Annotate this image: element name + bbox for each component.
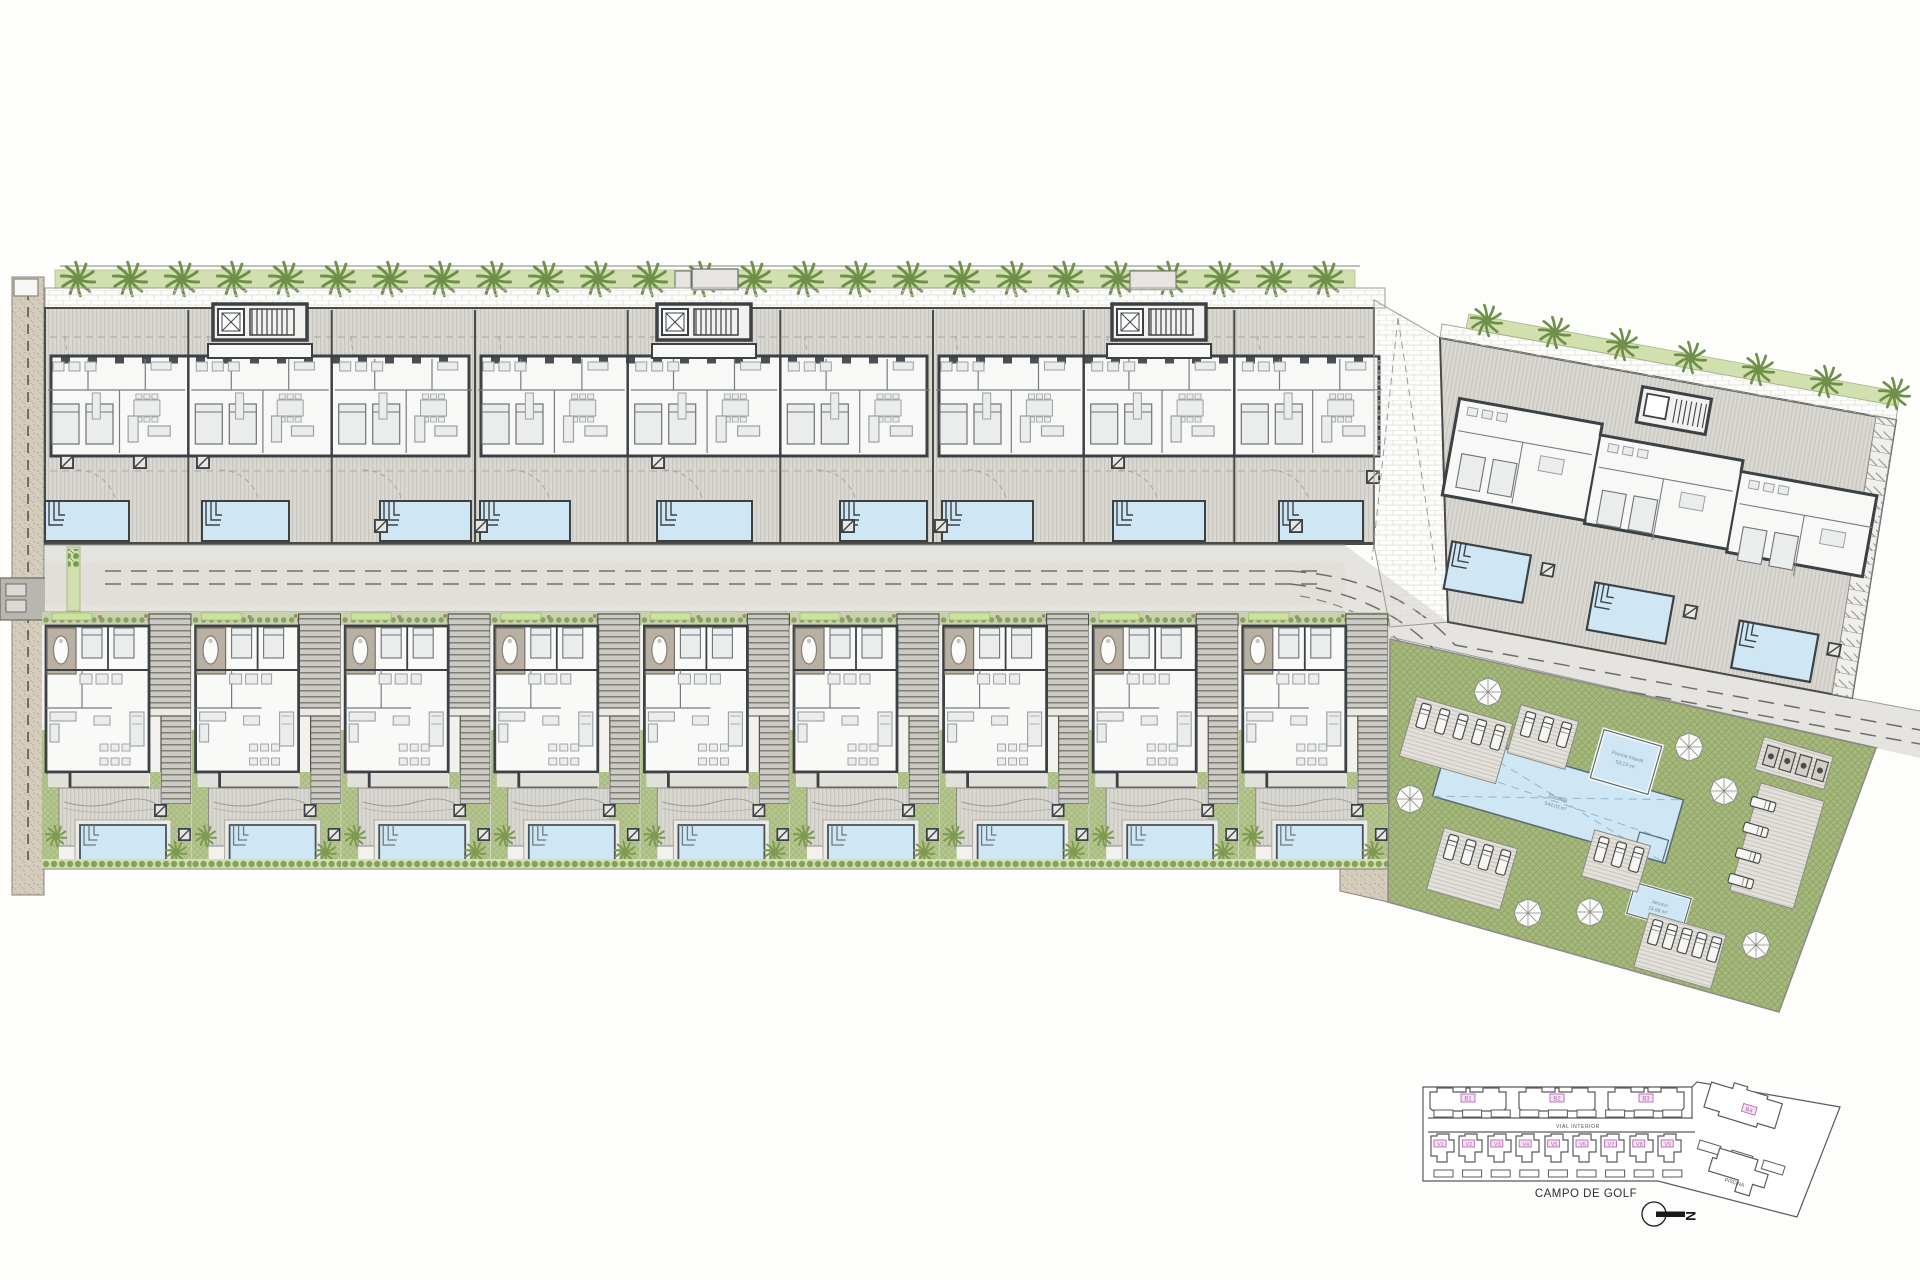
svg-text:V9: V9 [1664, 1142, 1671, 1148]
svg-text:VIAL INTERIOR: VIAL INTERIOR [1556, 1124, 1600, 1130]
svg-text:V3: V3 [1494, 1142, 1501, 1148]
svg-text:V4: V4 [1522, 1142, 1529, 1148]
svg-text:B2: B2 [1553, 1097, 1561, 1103]
svg-text:CAMPO DE GOLF: CAMPO DE GOLF [1535, 1188, 1637, 1200]
svg-text:B3: B3 [1642, 1097, 1650, 1103]
svg-text:N: N [1683, 1211, 1698, 1221]
svg-text:V5: V5 [1551, 1142, 1558, 1148]
svg-text:V6: V6 [1579, 1142, 1586, 1148]
svg-text:V8: V8 [1636, 1142, 1643, 1148]
svg-text:V1: V1 [1437, 1142, 1444, 1148]
svg-text:V7: V7 [1608, 1142, 1615, 1148]
svg-text:V2: V2 [1466, 1142, 1473, 1148]
svg-text:B1: B1 [1464, 1097, 1472, 1103]
